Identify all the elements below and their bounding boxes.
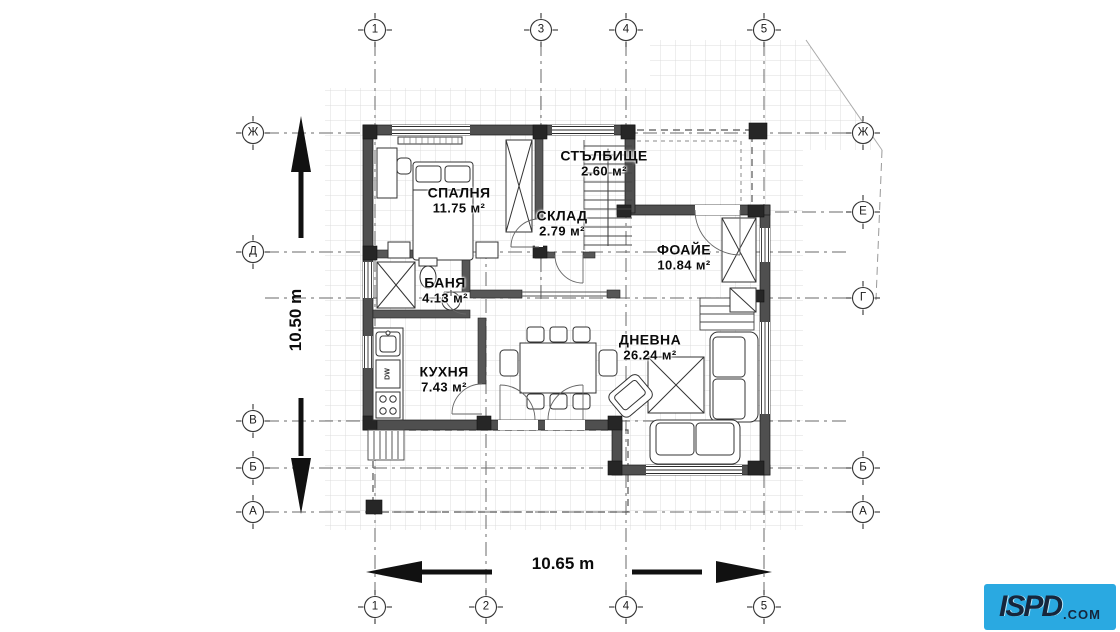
logo-name: ISPD (999, 592, 1061, 622)
room-name: КУХНЯ (419, 364, 468, 380)
axis-marker-bottom-3: 5 (761, 601, 767, 613)
room-name: БАНЯ (422, 275, 468, 291)
room-name: СПАЛНЯ (428, 185, 491, 201)
room-area: 26.24 м² (619, 348, 681, 363)
room-label-bathroom: БАНЯ 4.13 м² (422, 275, 468, 306)
logo-tld: .COM (1063, 607, 1101, 622)
room-area: 2.60 м² (560, 164, 647, 179)
room-name: ФОАЙЕ (657, 242, 711, 258)
room-label-storage: СКЛАД 2.79 м² (536, 208, 587, 239)
axis-marker-right-3: Б (859, 462, 867, 474)
axis-marker-top-3: 5 (761, 24, 767, 36)
axis-marker-right-2: Г (860, 292, 866, 304)
room-label-kitchen: КУХНЯ 7.43 м² (419, 364, 468, 395)
dimension-vertical-label: 10.50 m (286, 289, 306, 351)
room-area: 7.43 м² (419, 380, 468, 395)
text-overlay: СПАЛНЯ 11.75 м² СТЪЛБИЩЕ 2.60 м² СКЛАД 2… (0, 0, 1120, 632)
axis-marker-top-0: 1 (372, 24, 378, 36)
room-area: 2.79 м² (536, 224, 587, 239)
axis-marker-left-3: Б (249, 462, 257, 474)
axis-marker-right-4: А (859, 506, 867, 518)
axis-marker-bottom-0: 1 (372, 601, 378, 613)
axis-marker-top-2: 4 (623, 24, 629, 36)
room-name: ДНЕВНА (619, 332, 681, 348)
room-name: СТЪЛБИЩЕ (560, 148, 647, 164)
room-label-staircase: СТЪЛБИЩЕ 2.60 м² (560, 148, 647, 179)
axis-marker-bottom-2: 4 (623, 601, 629, 613)
room-area: 10.84 м² (657, 258, 711, 273)
axis-marker-left-2: В (249, 415, 257, 427)
dishwasher-label: DW (385, 368, 392, 380)
room-name: СКЛАД (536, 208, 587, 224)
axis-marker-right-1: Е (859, 206, 867, 218)
room-label-bedroom: СПАЛНЯ 11.75 м² (428, 185, 491, 216)
room-label-foyer: ФОАЙЕ 10.84 м² (657, 242, 711, 273)
axis-marker-bottom-1: 2 (483, 601, 489, 613)
dimension-horizontal-label: 10.65 m (532, 554, 594, 574)
floor-plan-page: СПАЛНЯ 11.75 м² СТЪЛБИЩЕ 2.60 м² СКЛАД 2… (0, 0, 1120, 632)
axis-marker-left-1: Д (249, 246, 257, 258)
axis-marker-right-0: Ж (858, 127, 869, 139)
room-area: 11.75 м² (428, 201, 491, 216)
logo: ISPD .COM (984, 584, 1116, 630)
axis-marker-left-0: Ж (248, 127, 259, 139)
room-label-living-room: ДНЕВНА 26.24 м² (619, 332, 681, 363)
room-area: 4.13 м² (422, 291, 468, 306)
axis-marker-left-4: А (249, 506, 257, 518)
axis-marker-top-1: 3 (538, 24, 544, 36)
